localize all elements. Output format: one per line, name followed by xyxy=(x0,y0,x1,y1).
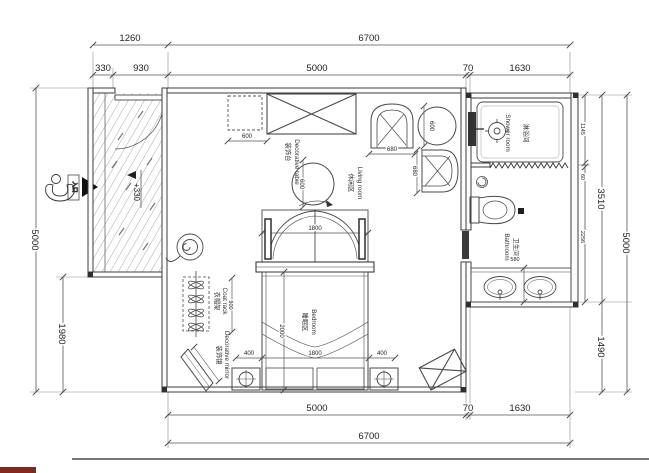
dim-top-5000: 5000 xyxy=(306,63,327,74)
dim-coat-rack: 900 xyxy=(227,275,235,335)
toilet-paper-roll xyxy=(477,177,488,188)
bathroom-door-panel xyxy=(462,231,469,259)
armchair-right xyxy=(422,150,458,192)
dim-bed-width-row: 400 1800 400 xyxy=(233,351,398,361)
dim-top-930: 930 xyxy=(133,63,149,74)
dim-left-1980: 1980 xyxy=(56,323,67,344)
dim-right-1490: 1490 xyxy=(595,336,606,357)
floor-plan-canvas: 1260 6700 330 930 5000 70 1630 5000 70 1… xyxy=(0,0,649,473)
dim-side-table-600: 600 xyxy=(428,121,434,132)
floor-plan-drawing: 1260 6700 330 930 5000 70 1630 5000 70 1… xyxy=(0,0,649,473)
dim-bottom-70: 70 xyxy=(463,403,474,414)
entry-person-figure: 入口 xyxy=(46,175,79,202)
bedroom-label-zh: 睡眠区 xyxy=(301,313,309,332)
entrance-ramp xyxy=(93,93,162,272)
decor-table-label-zh: 装饰台 xyxy=(284,143,293,162)
shower-tray xyxy=(477,102,563,162)
floor-drain xyxy=(518,208,524,214)
dim-top-1630: 1630 xyxy=(509,63,530,74)
dim-right-2256: 2256 xyxy=(579,231,585,243)
dim-right-1145: 1145 xyxy=(579,123,585,135)
dim-top-70: 70 xyxy=(463,63,474,74)
dim-cabinet-600: 600 xyxy=(242,134,253,140)
shower-label-zh: 淋浴间 xyxy=(522,124,531,143)
wall-fan xyxy=(166,234,203,262)
vanity-counter xyxy=(471,268,571,302)
armchair-top xyxy=(371,104,413,148)
dim-bottom-1630: 1630 xyxy=(509,403,530,414)
dim-right-5000: 5000 xyxy=(620,232,631,253)
dim-nightstand-right-400: 400 xyxy=(377,351,388,357)
dim-vanity-580: 580 xyxy=(510,257,519,263)
vanity-faucets xyxy=(498,290,542,300)
dim-top-330: 330 xyxy=(95,63,111,74)
living-label-en: Living room xyxy=(356,167,363,200)
dim-bottom-5000: 5000 xyxy=(306,403,327,414)
coat-rack-label-zh: 衣帽架 xyxy=(213,292,222,312)
bed-headboard xyxy=(256,262,374,272)
floor-stool xyxy=(419,349,466,390)
dim-round-table-600: 600 xyxy=(298,179,304,190)
dim-left-5000: 5000 xyxy=(29,229,40,250)
dim-bed-1800: 1800 xyxy=(308,351,322,357)
dim-armchair-top: 680 xyxy=(366,147,418,157)
bedroom-label-en: Bedroom xyxy=(310,309,317,335)
coat-rack xyxy=(183,271,209,337)
shower-column xyxy=(468,112,476,146)
decor-mirror-label-en: Decorative mirror xyxy=(223,331,230,379)
bathroom-label-en: Bathroom xyxy=(503,233,510,260)
shower-curtain-zigzag xyxy=(490,163,568,168)
dim-coat-rack-900: 900 xyxy=(227,300,233,309)
page-corner-mark xyxy=(0,467,36,473)
toilet xyxy=(470,196,515,223)
dim-bed-head-1800: 1800 xyxy=(308,226,322,232)
entry-level-value: +330 xyxy=(132,183,141,202)
dim-cabinet: 600 xyxy=(225,134,270,144)
living-label-zh: 休闲区 xyxy=(347,174,356,193)
dim-top-6700: 6700 xyxy=(358,33,379,44)
decor-mirror-label-zh: 装饰镜 xyxy=(215,346,224,366)
wall-cabinet-dashed xyxy=(228,96,262,130)
dim-bed-2000: 2000 xyxy=(278,324,284,338)
entry-label: 入口 xyxy=(71,181,78,192)
dim-bottom-6700: 6700 xyxy=(358,431,379,442)
coat-rack-label-en: Coat rack xyxy=(221,288,228,316)
dim-top-1260: 1260 xyxy=(119,33,140,44)
dim-right-60: 60 xyxy=(579,174,585,180)
decorative-console-table xyxy=(267,94,356,134)
dim-chair-680d: 680 xyxy=(411,166,417,177)
dim-nightstand-left-400: 400 xyxy=(244,351,255,357)
dim-chair-680w: 680 xyxy=(387,147,398,153)
dim-right-3510: 3510 xyxy=(595,188,606,209)
dim-bed-length: 2000 xyxy=(278,269,287,393)
bathroom-label-zh: 卫生间 xyxy=(512,238,521,257)
shower-label-en: Shower room xyxy=(504,114,511,151)
